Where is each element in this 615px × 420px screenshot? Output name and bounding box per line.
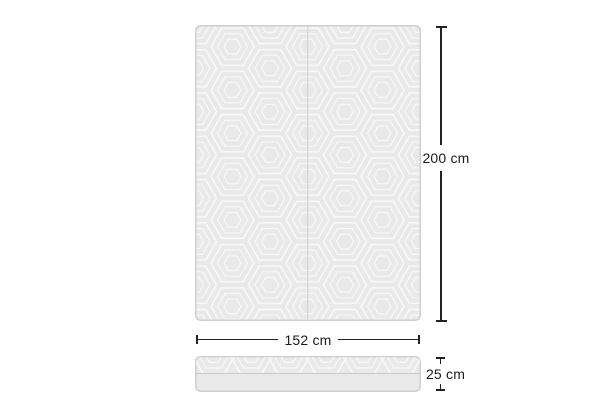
height-dimension-label: 200 cm	[422, 145, 469, 171]
height-dimension-line	[440, 28, 442, 145]
width-dimension-line	[338, 339, 418, 341]
depth-dimension-bottom-cap	[436, 389, 445, 391]
height-dimension-line	[440, 171, 442, 320]
height-dimension-bottom-cap	[436, 320, 447, 322]
depth-dimension-label: 25 cm	[426, 367, 465, 381]
product-dimension-diagram: 200 cm 152 cm 25 cm	[0, 0, 615, 420]
width-dimension: 152 cm	[196, 334, 420, 345]
height-dimension: 200 cm	[435, 26, 447, 322]
width-dimension-right-tick	[418, 335, 420, 344]
width-dimension-label: 152 cm	[278, 333, 337, 347]
mattress-side-view	[195, 356, 421, 392]
side-view-quilted-band	[195, 356, 421, 374]
depth-dimension-line	[440, 359, 442, 364]
depth-dimension: 25 cm	[436, 357, 445, 391]
mattress-top-view	[195, 25, 421, 321]
width-dimension-line	[198, 339, 278, 341]
